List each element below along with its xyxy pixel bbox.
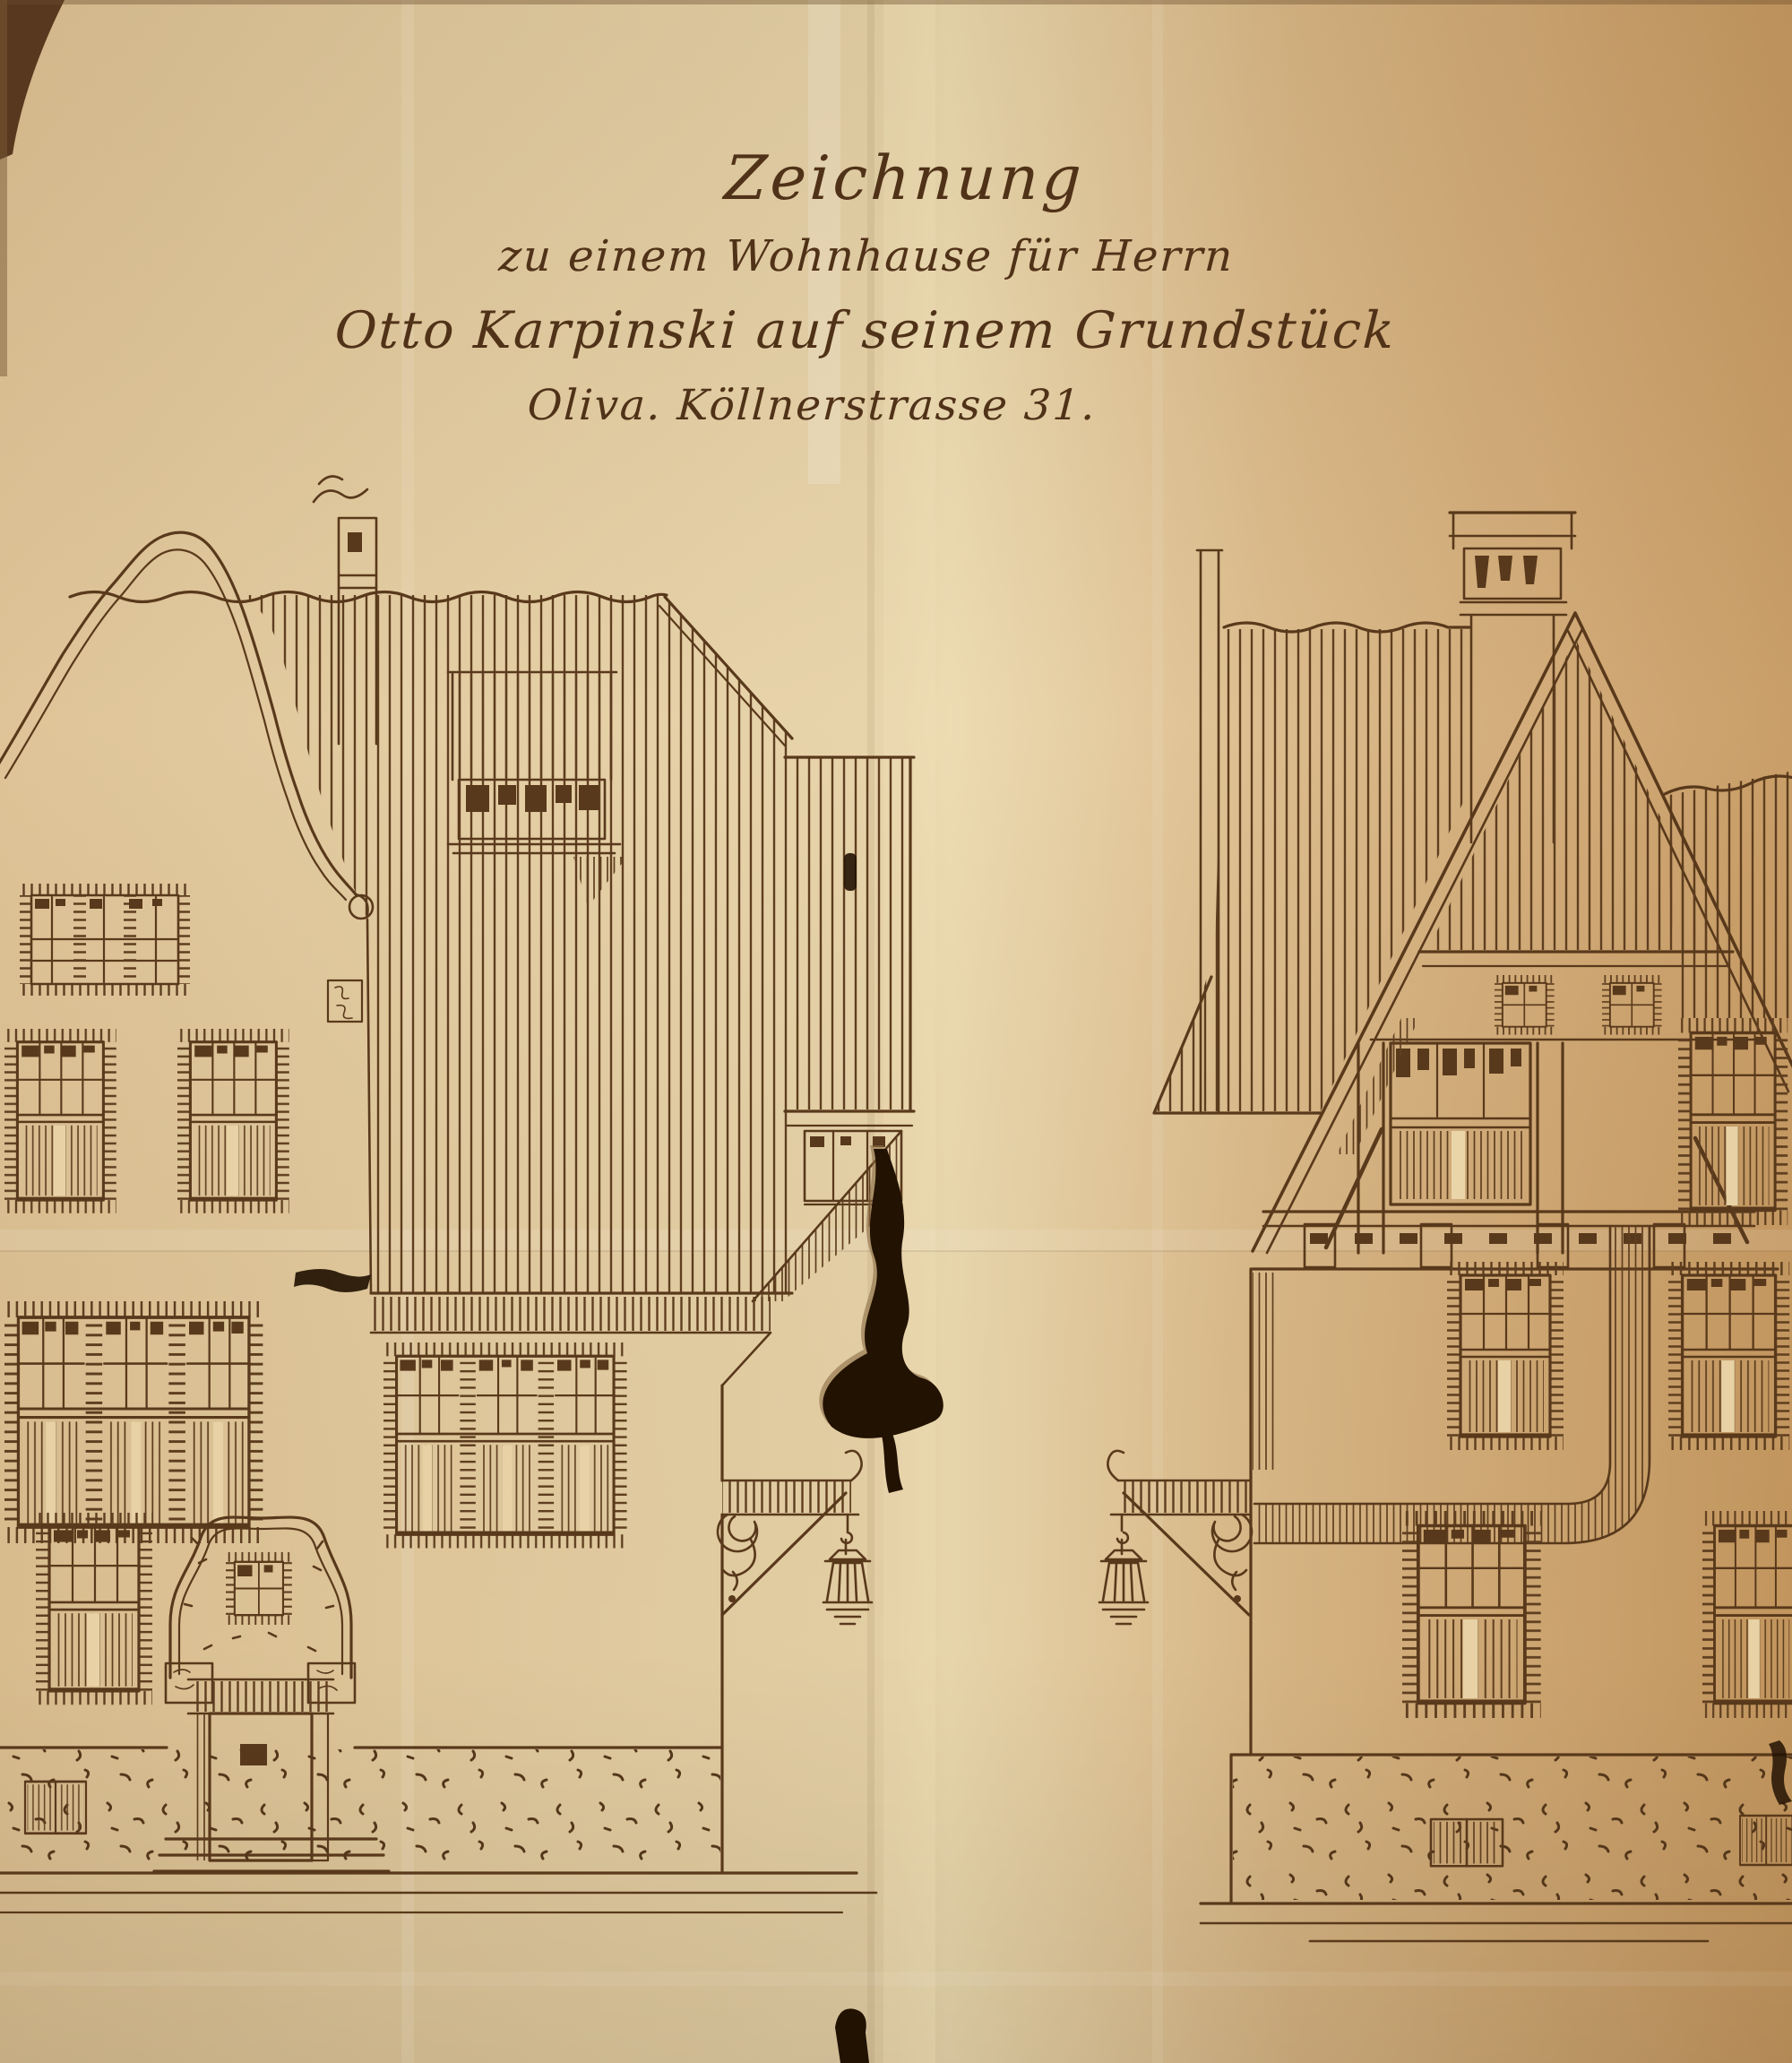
drawing-canvas: Zeichnung zu einem Wohnhause für Herrn O…: [0, 0, 1792, 2063]
tear-bottom: [835, 2008, 869, 2063]
scanned-drawing-sheet: Zeichnung zu einem Wohnhause für Herrn O…: [0, 0, 1792, 2063]
cellar-grille: [25, 1782, 86, 1834]
title-line-4: Oliva. Köllnerstrasse 31.: [526, 381, 1098, 430]
title-line-2: zu einem Wohnhause für Herrn: [496, 231, 1235, 281]
cellar-grille: [1740, 1816, 1792, 1865]
plinth: [1231, 1755, 1792, 1902]
edge-shadow: [0, 0, 7, 376]
tear-small: [844, 853, 857, 891]
edge-shadow: [0, 0, 1792, 4]
title-line-3: Otto Karpinski auf seinem Grundstück: [333, 301, 1397, 360]
horizontal-crease: [0, 1972, 1792, 1986]
title-line-1: Zeichnung: [720, 143, 1086, 214]
cellar-grille: [1431, 1819, 1503, 1866]
